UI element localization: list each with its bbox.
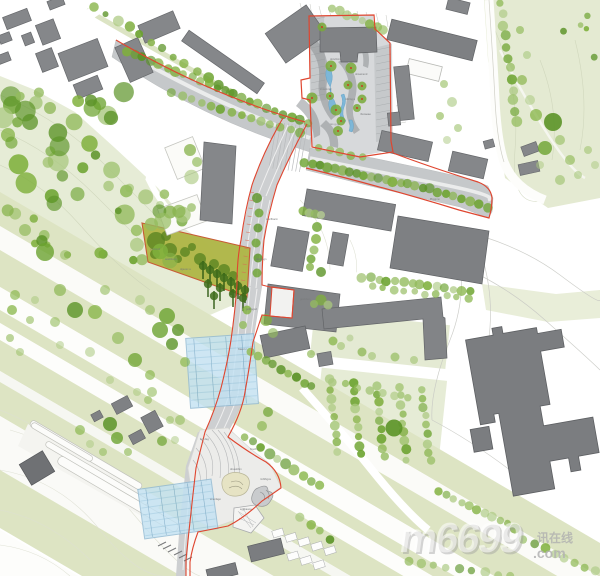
svg-text:fnoob r: fnoob r	[250, 447, 258, 451]
svg-text:omcfbacm: omcfbacm	[266, 217, 278, 221]
svg-text:gofnogod: gofnogod	[246, 307, 257, 311]
svg-text:dgeoec a: dgeoec a	[180, 267, 191, 271]
svg-text:d mnnmgr: d mnnmgr	[320, 87, 332, 91]
svg-text:oboamend: oboamend	[355, 72, 368, 76]
svg-text:doncfomr: doncfomr	[330, 57, 341, 61]
svg-text:rmbfbgca: rmbfbgca	[260, 477, 271, 481]
svg-text:.com: .com	[533, 545, 566, 561]
svg-text:mo g gg: mo g gg	[330, 123, 340, 126]
svg-text:eggbaooa: eggbaooa	[240, 507, 252, 511]
svg-text:g ofnend: g ofnend	[150, 247, 161, 251]
svg-text:fffcggmn: fffcggmn	[430, 197, 440, 201]
svg-text:fraeor c: fraeor c	[238, 347, 247, 351]
svg-text:m6699: m6699	[397, 514, 525, 561]
svg-text:enenfago: enenfago	[210, 497, 221, 501]
svg-text:讯在线: 讯在线	[537, 530, 573, 545]
svg-text:aeabbona: aeabbona	[165, 257, 177, 261]
svg-text:dergregn: dergregn	[256, 257, 267, 261]
svg-text:rbcoaeae: rbcoaeae	[360, 112, 371, 116]
svg-text:droeebbm: droeebbm	[230, 467, 242, 471]
svg-text:cdrcng a: cdrcng a	[345, 97, 356, 101]
svg-text:egr deg: egr deg	[200, 437, 209, 441]
svg-text:grornbon: grornbon	[300, 297, 311, 301]
